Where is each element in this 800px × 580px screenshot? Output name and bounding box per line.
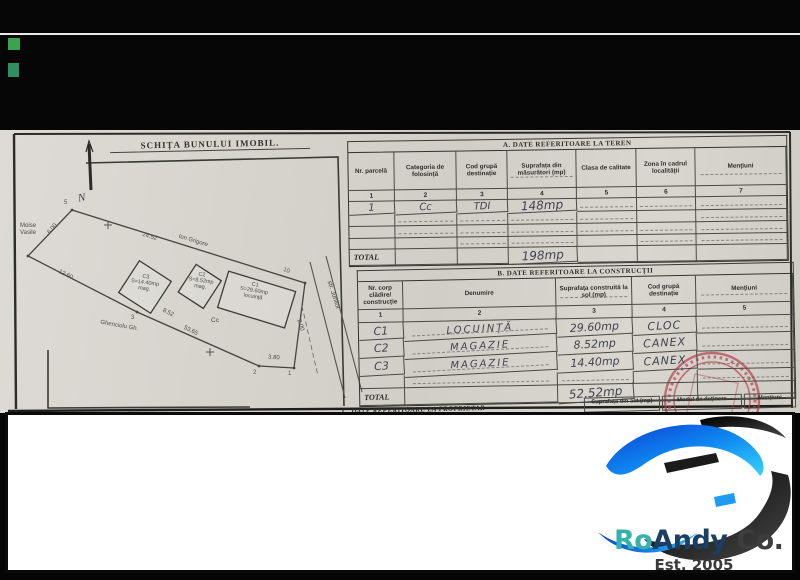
empty-cell [350, 238, 396, 250]
empty-cell [508, 212, 577, 225]
empty-cell [396, 238, 458, 250]
col-header: Modul de deținere [662, 394, 742, 411]
land-code-label: Cc [211, 318, 219, 325]
empty-cell [577, 211, 637, 224]
empty-cell [457, 213, 508, 226]
col-header: Suprafața construită la sol (mp) [556, 277, 633, 306]
empty-cell [395, 214, 457, 227]
screenshot-root: SCHIȚA BUNULUI IMOBIL. N Moise Vasile Io… [0, 0, 800, 580]
neighbor-label: Moise Vasile [20, 223, 36, 236]
empty-cell [697, 350, 794, 370]
col-header: Nr. parcelă [348, 152, 395, 191]
col-header: Clasa de calitate [576, 149, 637, 188]
empty-cell [457, 237, 508, 249]
empty-cell [395, 226, 457, 239]
empty-cell [697, 315, 794, 334]
empty-cell [696, 196, 787, 210]
col-header: Nr. corp clădire/ construcție [358, 281, 404, 310]
point-label: 5 [64, 200, 67, 206]
col-header: Categoria de folosință [394, 152, 457, 191]
empty-cell [577, 235, 637, 247]
empty-cell [396, 249, 458, 266]
col-header: Denumire [403, 278, 557, 309]
logo-est-label: Est. 2005 [654, 556, 733, 574]
empty-cell [458, 248, 509, 265]
col-number: 6 [637, 186, 696, 198]
empty-cell [457, 225, 508, 238]
table-constructii: B. DATE REFERITOARE LA CONSTRUCȚII Nr. c… [357, 262, 797, 407]
empty-cell [349, 226, 395, 239]
logo-wordmark: RoAndy Co. [614, 525, 783, 556]
green-square-icon [8, 63, 19, 77]
empty-cell [349, 214, 395, 227]
empty-cell [637, 222, 696, 235]
col-header: Suprafața din act (mp) [584, 396, 660, 413]
empty-cell [577, 223, 637, 236]
col-header: Suprafața din măsurători (mp) [507, 150, 577, 189]
empty-cell [637, 210, 696, 223]
empty-cell [634, 370, 698, 384]
point-label: 3 [131, 315, 134, 321]
col-header: Mențiuni [744, 392, 796, 408]
empty-cell [578, 246, 638, 263]
empty-cell [697, 332, 794, 352]
empty-cell [638, 245, 697, 262]
cell-cod: CANEX [633, 351, 698, 372]
empty-cell [637, 197, 696, 211]
total-suprafata: 198mp [508, 246, 578, 265]
scanned-document: SCHIȚA BUNULUI IMOBIL. N Moise Vasile Io… [0, 130, 800, 413]
col-header: Cod grupă destinație [456, 151, 508, 190]
table-teren: A. DATE REFERITOARE LA TEREN Nr. parcelă… [347, 135, 789, 267]
point-label: 1 [288, 371, 291, 377]
col-number: 5 [577, 187, 637, 199]
divider-line [0, 33, 800, 35]
dim-label: 3.80 [268, 355, 280, 362]
col-header: Zona în cadrul localității [636, 148, 696, 187]
col-header: Mențiuni [695, 147, 787, 186]
col-header: Cod grupă destinație [632, 276, 697, 305]
north-arrow-label: N [77, 192, 86, 205]
empty-cell [697, 244, 788, 261]
total-label: TOTAL [350, 249, 396, 266]
company-logo: RoAndy Co. Est. 2005 [588, 413, 800, 578]
green-square-icon [8, 38, 20, 50]
top-band [0, 0, 800, 130]
col-header: Mențiuni [696, 274, 794, 304]
cell-corp: C3 [359, 357, 405, 377]
point-label: 2 [253, 370, 256, 376]
logo-swoosh-graphic: RoAndy Co. Est. 2005 [588, 413, 800, 578]
empty-cell [508, 224, 577, 237]
empty-cell [637, 234, 696, 246]
empty-cell [360, 375, 405, 389]
empty-cell [577, 198, 637, 212]
